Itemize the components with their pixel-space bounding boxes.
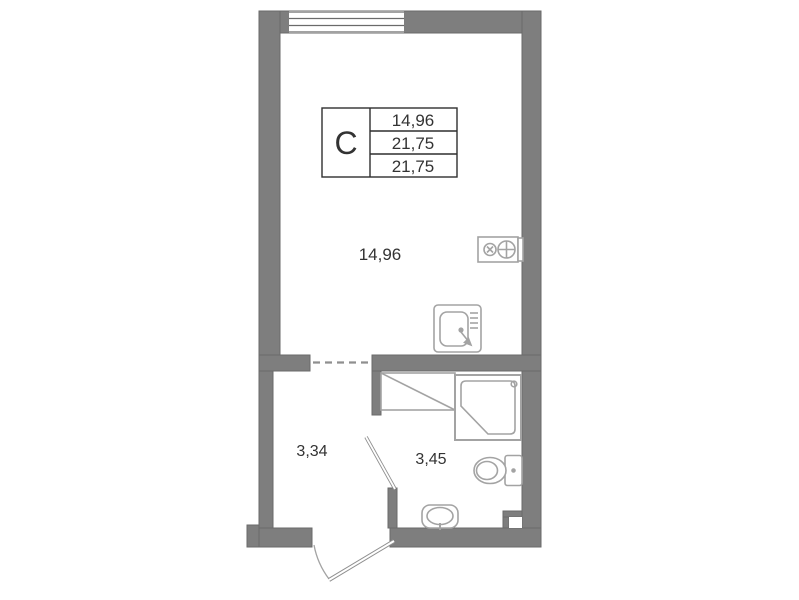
stamp-type-letter: С (334, 125, 357, 161)
floor-plan-page: С 14,96 21,75 21,75 14,96 3,34 3,45 (0, 0, 799, 600)
entry-door-leaf-inner (329, 541, 394, 580)
wall-bottom-right (390, 528, 541, 547)
window (289, 11, 404, 33)
vent-shaft (509, 517, 522, 528)
bathroom-door (366, 437, 395, 489)
room-label-living: 14,96 (359, 245, 402, 264)
room-label-bath: 3,45 (415, 451, 446, 468)
stamp-value-3: 21,75 (392, 157, 435, 176)
toilet-icon (474, 456, 522, 486)
stamp-value-1: 14,96 (392, 111, 435, 130)
sink-icon (422, 505, 458, 530)
wall-mid-left-stub (259, 355, 310, 371)
bathtub-icon (381, 373, 455, 410)
wall-right (522, 11, 541, 547)
wall-vent-left (503, 517, 509, 528)
wall-bath-upper-leg (372, 371, 381, 415)
floor-plan: С 14,96 21,75 21,75 14,96 3,34 3,45 (0, 0, 799, 600)
window-glass (289, 11, 404, 33)
entry-door (314, 541, 394, 580)
shower-icon (455, 375, 521, 440)
wall-left-lower (259, 371, 273, 528)
wall-bath-lower-stub (388, 488, 397, 528)
room-label-hall: 3,34 (296, 443, 327, 460)
wall-bottom-left (259, 528, 312, 547)
wall-left-upper (259, 11, 280, 355)
entry-door-arc (314, 545, 329, 579)
wall-vent-top (503, 511, 522, 517)
wall-bottom-left-step (247, 525, 259, 547)
wall-mid-right (372, 355, 541, 371)
washing-machine-icon (434, 305, 481, 352)
stamp-value-2: 21,75 (392, 134, 435, 153)
kitchen-unit-icon (478, 237, 523, 262)
bathroom-door-leaf-inner (366, 437, 395, 489)
fixtures (381, 237, 523, 530)
